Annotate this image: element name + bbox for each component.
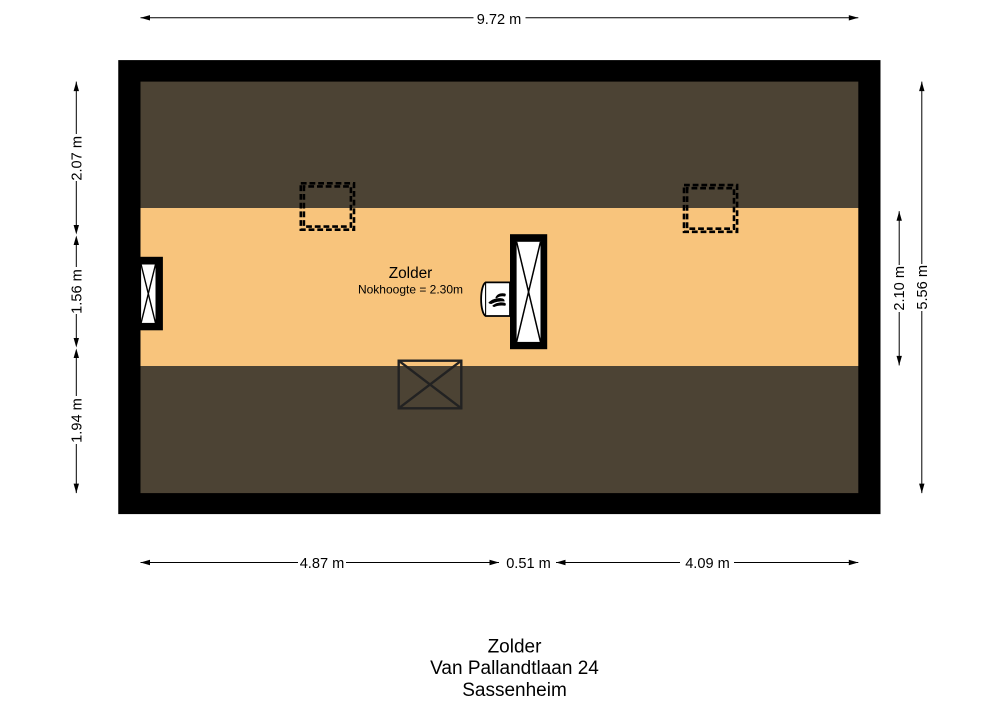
svg-text:1.56 m: 1.56 m bbox=[69, 269, 85, 314]
svg-text:Sassenheim: Sassenheim bbox=[462, 680, 567, 701]
svg-text:2.07 m: 2.07 m bbox=[69, 136, 85, 181]
svg-text:0.51 m: 0.51 m bbox=[506, 556, 551, 572]
svg-text:2.10 m: 2.10 m bbox=[892, 266, 908, 311]
svg-text:9.72 m: 9.72 m bbox=[477, 12, 522, 28]
svg-text:Zolder: Zolder bbox=[389, 265, 433, 282]
svg-text:1.94 m: 1.94 m bbox=[69, 398, 85, 443]
svg-text:Nokhoogte = 2.30m: Nokhoogte = 2.30m bbox=[358, 283, 463, 297]
svg-text:4.09 m: 4.09 m bbox=[685, 556, 730, 572]
svg-text:Van Pallandtlaan 24: Van Pallandtlaan 24 bbox=[430, 658, 599, 679]
svg-text:4.87 m: 4.87 m bbox=[300, 556, 345, 572]
svg-text:5.56 m: 5.56 m bbox=[915, 265, 931, 310]
svg-text:Zolder: Zolder bbox=[488, 636, 543, 657]
